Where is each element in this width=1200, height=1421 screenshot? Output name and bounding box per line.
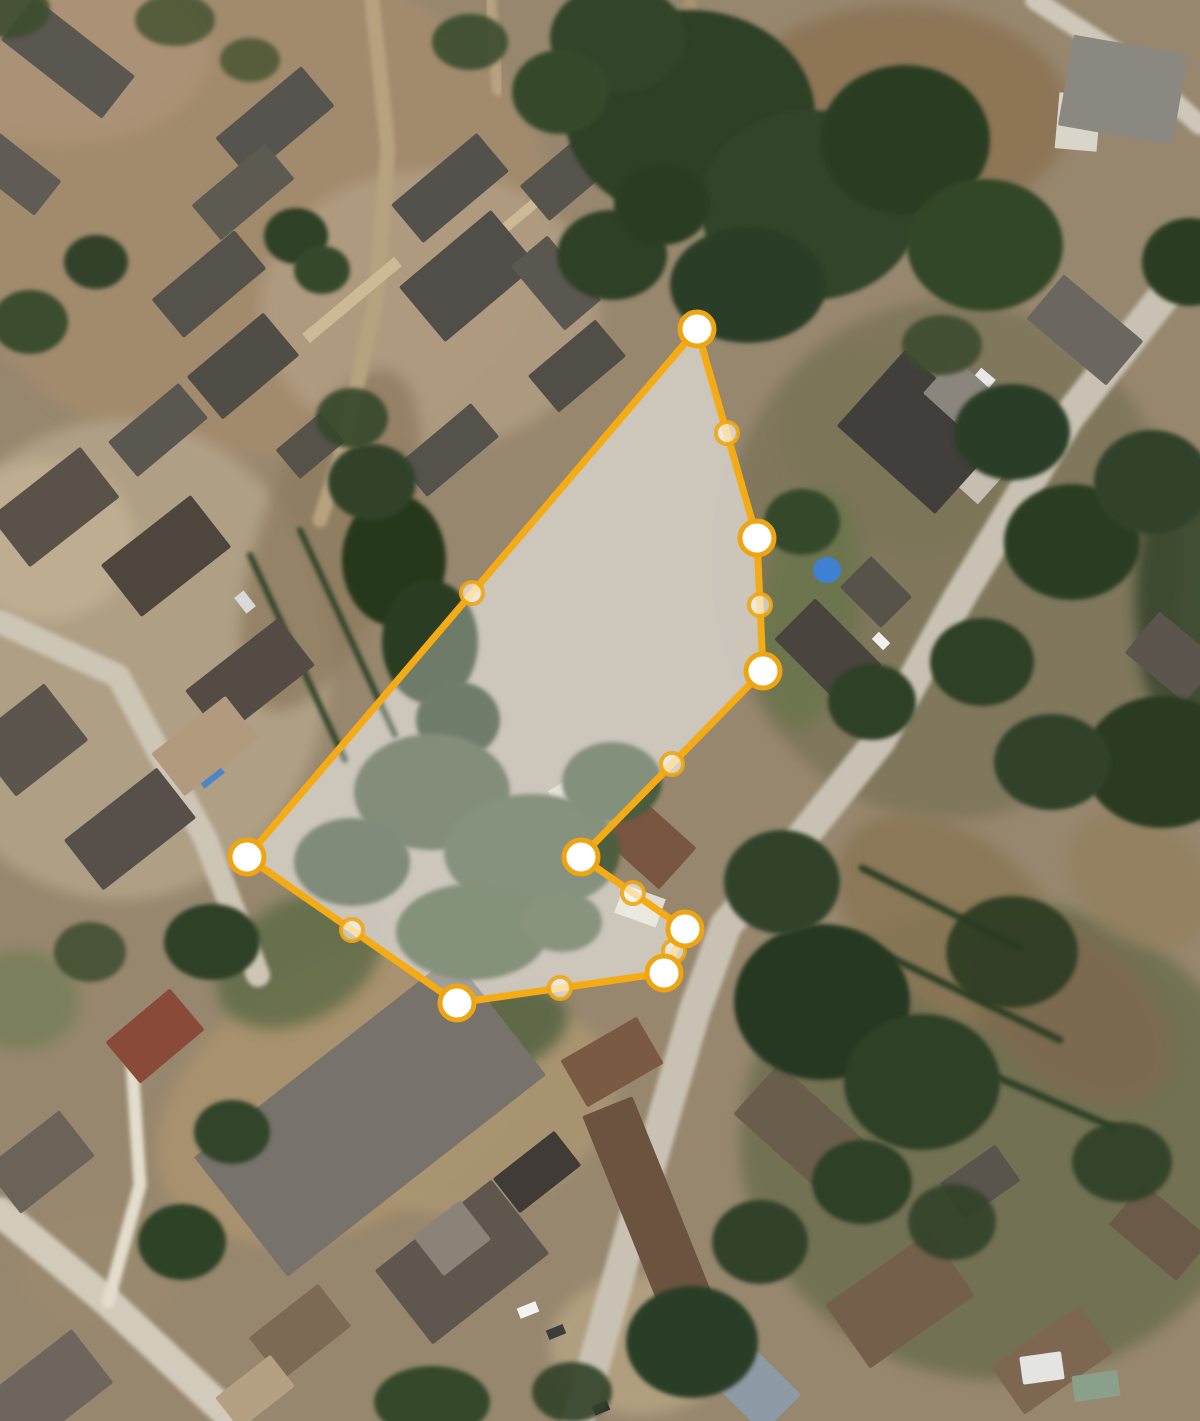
tree [512, 50, 608, 134]
tree [712, 1200, 808, 1284]
vertex-handle-7[interactable] [230, 840, 264, 874]
tree [724, 830, 840, 934]
tree [1072, 1122, 1172, 1202]
tree [954, 384, 1070, 480]
tree [54, 922, 126, 982]
vertex-handle-6[interactable] [440, 986, 474, 1020]
midpoint-handle-7[interactable] [461, 582, 483, 604]
midpoint-handle-6[interactable] [341, 919, 363, 941]
midpoint-handle-1[interactable] [749, 594, 771, 616]
vertex-handle-1[interactable] [740, 521, 774, 555]
vertex-handle-2[interactable] [746, 654, 780, 688]
map-viewport[interactable] [0, 0, 1200, 1421]
tree [220, 38, 280, 82]
tree [994, 714, 1110, 810]
tree [946, 896, 1078, 1008]
map-detail [813, 557, 841, 583]
tree [626, 1286, 758, 1398]
tree [764, 489, 840, 555]
tree [194, 1100, 270, 1164]
midpoint-handle-5[interactable] [549, 977, 571, 999]
vertex-handle-3[interactable] [564, 840, 598, 874]
tree [532, 1362, 612, 1421]
tree [164, 904, 260, 980]
midpoint-handle-3[interactable] [622, 882, 644, 904]
midpoint-handle-0[interactable] [716, 422, 738, 444]
tree [64, 235, 128, 289]
tree [902, 315, 982, 375]
tree [907, 179, 1063, 311]
tree [930, 618, 1034, 706]
tree [828, 664, 916, 740]
building [1019, 1351, 1064, 1385]
tree [844, 1014, 1000, 1150]
vertex-handle-5[interactable] [647, 956, 681, 990]
tree [328, 444, 416, 520]
tree [138, 1204, 226, 1280]
satellite-map[interactable] [0, 0, 1200, 1421]
tree [432, 14, 508, 70]
midpoint-handle-2[interactable] [661, 753, 683, 775]
vertex-handle-0[interactable] [680, 312, 714, 346]
tree [614, 165, 710, 245]
tree [908, 1184, 996, 1260]
tree [316, 388, 388, 448]
vertex-handle-4[interactable] [668, 912, 702, 946]
tree [294, 246, 350, 294]
tree [812, 1140, 912, 1224]
